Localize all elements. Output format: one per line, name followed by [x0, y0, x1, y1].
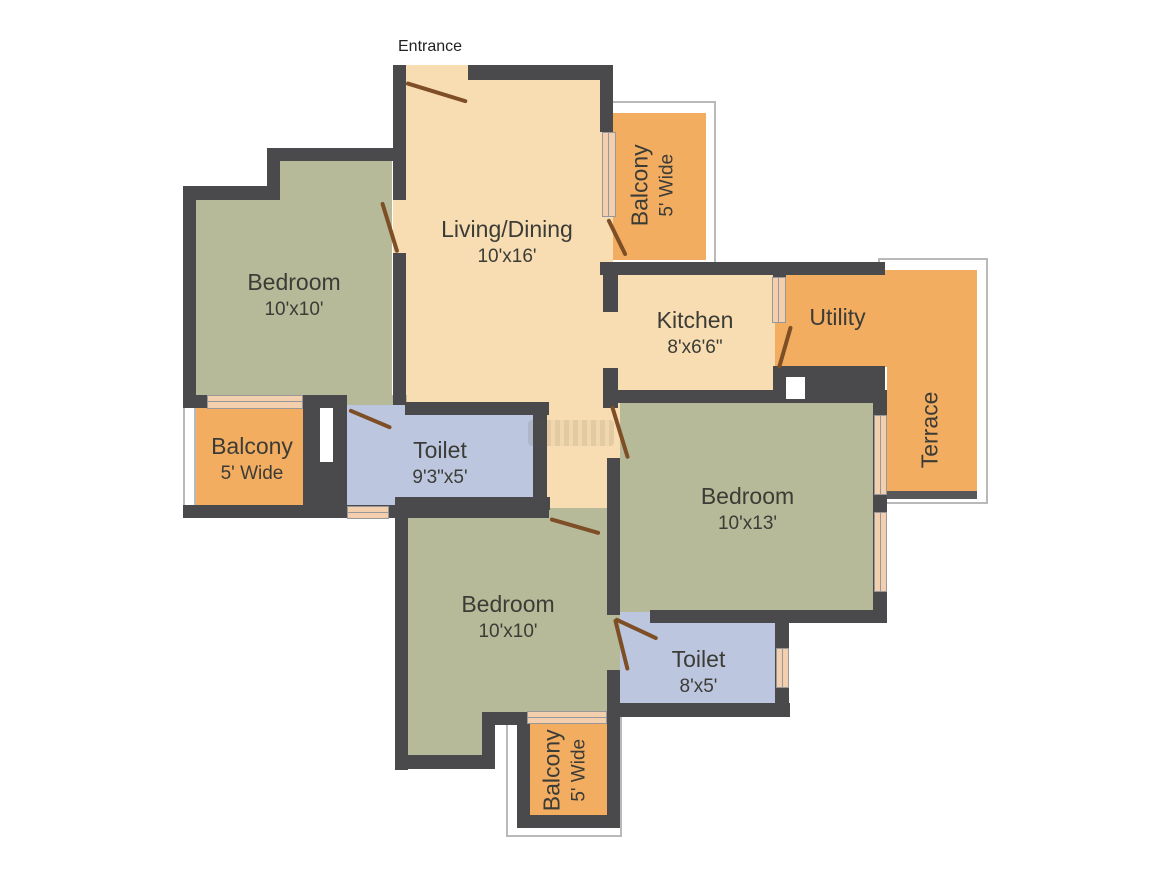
window-toilet-left — [347, 506, 389, 519]
room-name: Living/Dining — [402, 215, 612, 245]
floor-plan: Entrance Living/Dining 10'x16' Balcony 5… — [0, 0, 1160, 870]
room-name: Bedroom — [408, 590, 608, 620]
room-name: Balcony — [538, 729, 568, 811]
room-name: Bedroom — [620, 482, 875, 512]
entrance-label: Entrance — [398, 38, 462, 56]
room-bedroom-left-floor — [280, 160, 392, 200]
bedroom-left-label: Bedroom 10'x10' — [196, 268, 392, 323]
room-name: Toilet — [345, 436, 535, 466]
shaft-notch — [320, 408, 333, 462]
room-dims: 10'x13' — [620, 512, 875, 537]
utility-label: Utility — [780, 303, 895, 333]
bedroom-right-label: Bedroom 10'x13' — [620, 482, 875, 537]
room-name: Balcony — [625, 144, 655, 226]
wall — [183, 395, 209, 408]
wall — [613, 390, 885, 403]
window-toilet-bottom — [776, 648, 789, 688]
room-dims: 5' Wide — [568, 729, 593, 811]
room-dims: 8'x5' — [620, 675, 777, 700]
wall — [773, 262, 786, 278]
window-bedroom-right-lower — [874, 512, 887, 592]
room-name: Balcony — [186, 432, 318, 462]
room-dims: 10'x16' — [402, 245, 612, 270]
wall — [183, 186, 196, 408]
balcony-bottom-label: Balcony 5' Wide — [515, 700, 615, 840]
wall — [405, 402, 549, 415]
toilet-bottom-label: Toilet 8'x5' — [620, 645, 777, 700]
wall — [650, 610, 887, 623]
wall — [607, 458, 620, 615]
wall — [183, 186, 280, 200]
wall — [395, 497, 408, 770]
room-dims: 8'x6'6" — [610, 336, 780, 361]
room-name: Bedroom — [196, 268, 392, 298]
balcony-left-label: Balcony 5' Wide — [186, 432, 318, 487]
wall — [468, 65, 613, 80]
wall — [395, 755, 495, 769]
room-name: Toilet — [620, 645, 777, 675]
wall — [267, 148, 405, 161]
watermark — [528, 420, 614, 446]
wall — [393, 253, 406, 405]
room-dims: 10'x10' — [408, 620, 608, 645]
kitchen-label: Kitchen 8'x6'6" — [610, 306, 780, 361]
room-dims: 10'x10' — [196, 298, 392, 323]
bedroom-bottom-label: Bedroom 10'x10' — [408, 590, 608, 645]
terrace-label: Terrace — [880, 345, 980, 515]
room-dims: 5' Wide — [655, 144, 680, 226]
living-room-label: Living/Dining 10'x16' — [402, 215, 612, 270]
window-bedroom-left-balcony — [207, 395, 303, 409]
entrance-opening — [405, 65, 468, 80]
wall — [393, 65, 406, 200]
room-dims: 9'3"x5' — [345, 466, 535, 491]
room-name: Kitchen — [610, 306, 780, 336]
wall — [183, 505, 347, 518]
toilet-left-label: Toilet 9'3"x5' — [345, 436, 535, 491]
balcony-top-label: Balcony 5' Wide — [600, 110, 705, 260]
wall — [607, 703, 790, 717]
shaft-notch — [786, 377, 805, 399]
wall — [600, 262, 885, 275]
room-bedroom-bottom-floor — [408, 714, 482, 757]
room-name: Terrace — [915, 392, 945, 469]
room-dims: 5' Wide — [186, 462, 318, 487]
room-name: Utility — [780, 303, 895, 333]
